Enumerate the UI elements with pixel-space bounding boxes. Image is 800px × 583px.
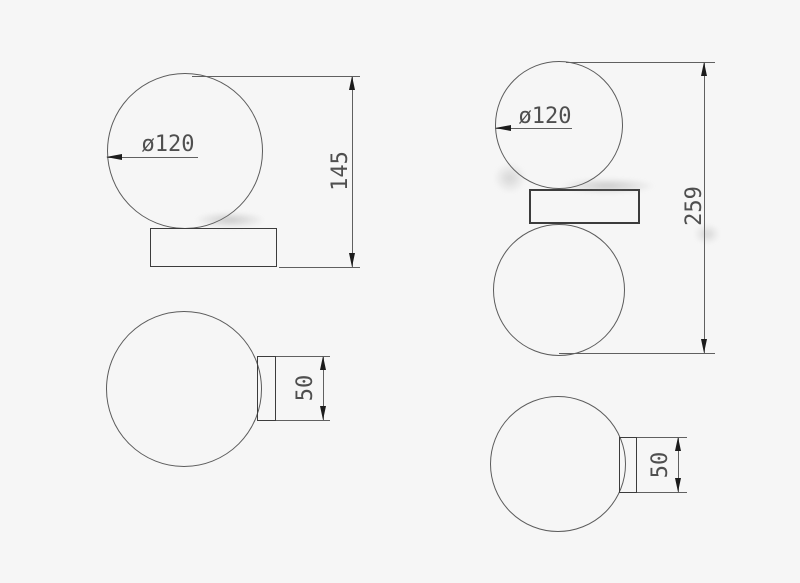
dimension-arrow-up <box>675 437 681 451</box>
wall-mount-outline <box>619 437 637 493</box>
globe-outline <box>490 396 626 532</box>
technical-drawing-canvas: ø120 145 ø120 259 <box>0 0 800 583</box>
dimension-arrow-down <box>675 478 681 492</box>
view-side-double: 50 <box>0 0 800 583</box>
depth-dimension-label: 50 <box>648 433 672 497</box>
